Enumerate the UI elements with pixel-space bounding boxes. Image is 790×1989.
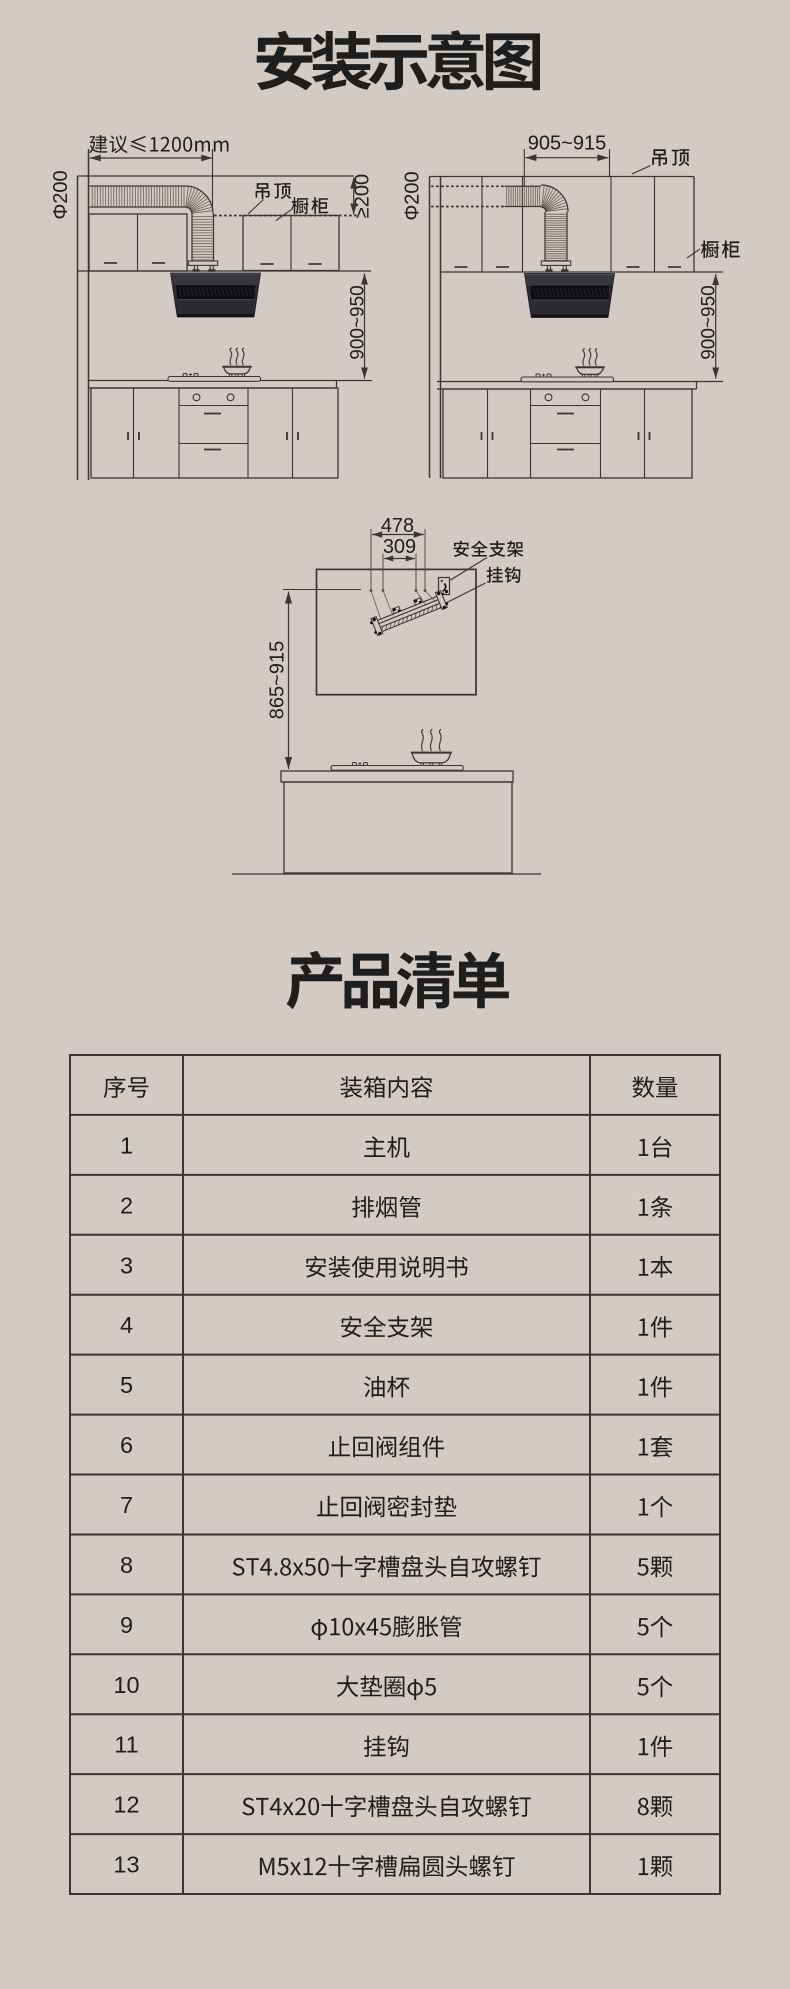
svg-text:309: 309 <box>383 536 416 558</box>
svg-text:865~915: 865~915 <box>267 641 289 719</box>
svg-text:11: 11 <box>114 1732 138 1758</box>
svg-text:8: 8 <box>120 1552 133 1578</box>
svg-text:2: 2 <box>120 1192 133 1218</box>
svg-text:7: 7 <box>120 1492 133 1518</box>
svg-text:5: 5 <box>120 1372 133 1398</box>
svg-text:900~950: 900~950 <box>348 285 369 360</box>
svg-text:4: 4 <box>120 1312 133 1338</box>
svg-text:1: 1 <box>120 1132 133 1158</box>
svg-text:905~915: 905~915 <box>528 133 606 155</box>
svg-text:478: 478 <box>381 515 414 537</box>
svg-text:900~950: 900~950 <box>699 285 720 360</box>
svg-text:10: 10 <box>113 1672 139 1698</box>
svg-text:3: 3 <box>120 1252 133 1278</box>
svg-text:6: 6 <box>120 1432 133 1458</box>
svg-text:≥200: ≥200 <box>352 174 374 218</box>
svg-text:12: 12 <box>113 1792 139 1818</box>
svg-text:Φ200: Φ200 <box>50 170 72 219</box>
svg-text:Φ200: Φ200 <box>402 171 424 220</box>
svg-text:9: 9 <box>120 1612 133 1638</box>
svg-text:13: 13 <box>113 1852 139 1878</box>
